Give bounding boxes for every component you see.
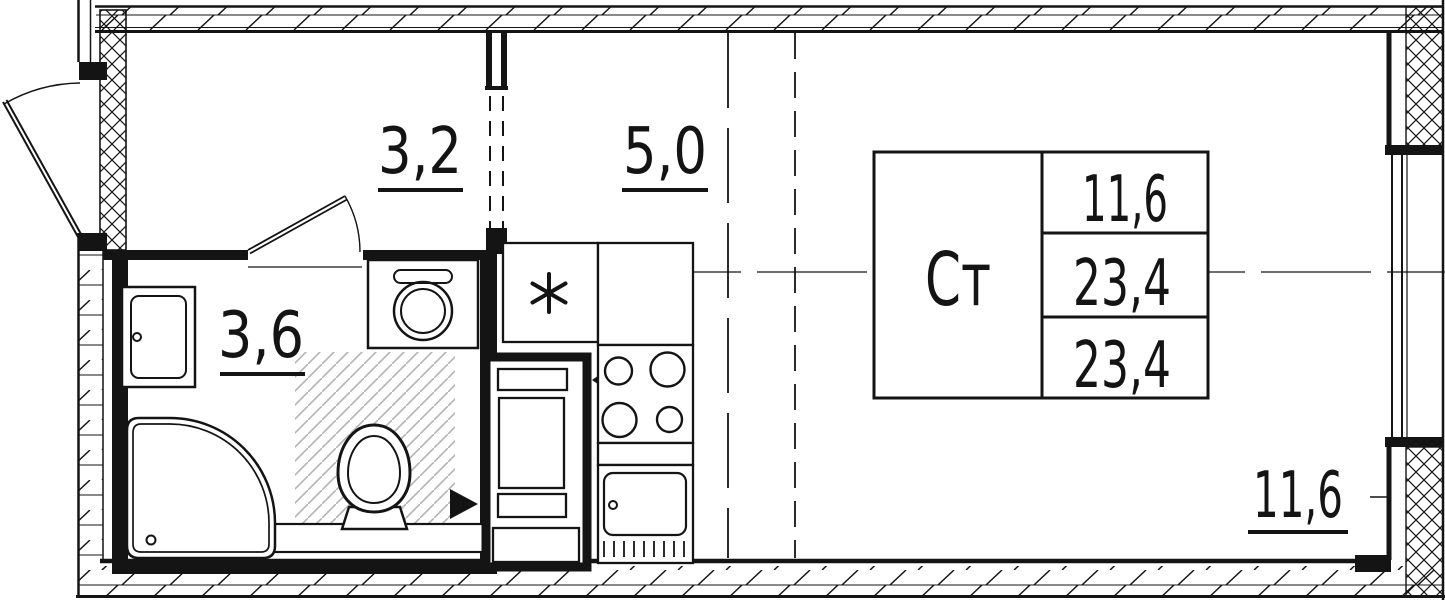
washing-machine	[122, 287, 195, 387]
vent-duct-unit	[486, 357, 587, 567]
kitchen-area-label: 5,0	[623, 115, 707, 189]
table-value-total-area-with-balcony: 23,4	[1073, 329, 1171, 403]
entry-pier-column	[100, 10, 126, 250]
table-value-living-area: 11,6	[1082, 163, 1168, 237]
washbasin	[368, 260, 478, 348]
window-sill-top	[1385, 145, 1443, 155]
room-type-abbr: Ст	[925, 237, 991, 323]
kitchen-sink-cabinet	[598, 465, 693, 563]
bottom-right-wall-corner	[1355, 555, 1391, 572]
table-value-total-area: 23,4	[1073, 247, 1171, 321]
floor-plan: Ст 11,6 23,4 23,4 3,2 5,0 3,6 11,6	[0, 0, 1445, 600]
living-area-label: 11,6	[1253, 459, 1343, 533]
floor-plan-drawing: Ст 11,6 23,4 23,4 3,2 5,0 3,6 11,6	[0, 0, 1445, 600]
toilet	[338, 425, 410, 529]
window-sill-bottom	[1385, 437, 1443, 447]
bathroom-area-label: 3,6	[218, 299, 304, 373]
hallway-area-label: 3,2	[378, 115, 462, 189]
top-wall	[95, 7, 1443, 32]
kitchen-counter-worktop	[598, 243, 693, 345]
